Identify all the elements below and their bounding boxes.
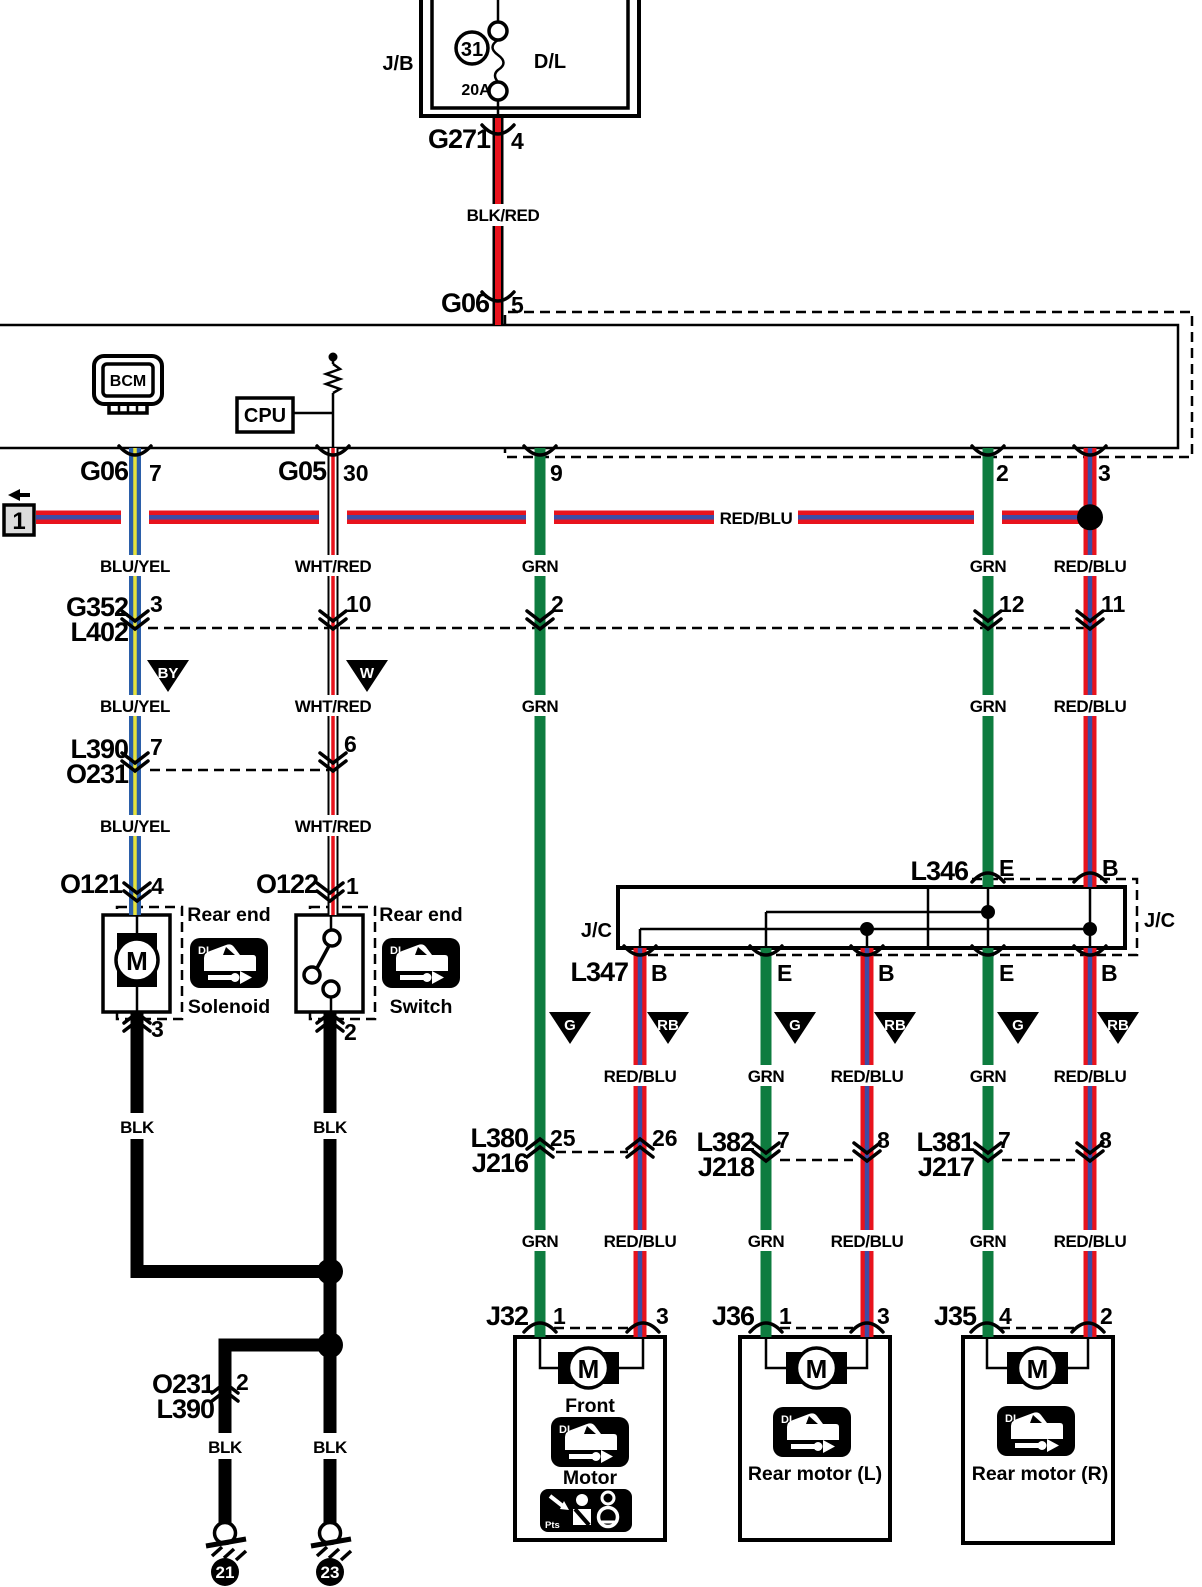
wire-grn-2 — [761, 948, 772, 1337]
arrow-left-icon — [8, 489, 30, 501]
pin-number: 8 — [1099, 1127, 1112, 1153]
wire-label: BLU/YEL — [100, 697, 170, 716]
connector-chevrons — [119, 125, 1106, 1401]
connector-g05: G05 — [278, 456, 327, 486]
wire-label: GRN — [970, 557, 1007, 576]
blk-junction-dot — [317, 1259, 343, 1285]
ground-number: 21 — [216, 1563, 235, 1582]
wire-label: GRN — [522, 557, 559, 576]
wire-label: BLU/YEL — [100, 817, 170, 836]
circuit-ref: 1 — [4, 489, 34, 535]
pin-number: 2 — [344, 1019, 357, 1045]
wire-label: BLK/RED — [467, 206, 540, 225]
passenger-lock-icon: Pts — [540, 1489, 632, 1532]
pin-number: 1 — [779, 1303, 792, 1329]
code-rb: RB — [657, 1017, 679, 1034]
circuit-label: D/L — [534, 51, 566, 73]
jc-junction-dot — [981, 905, 995, 919]
wire-label: RED/BLU — [604, 1232, 677, 1251]
jc-junction-dot — [1083, 922, 1097, 936]
solenoid-box: M — [103, 907, 182, 1019]
wire-label: WHT/RED — [295, 817, 372, 836]
connector-l390-bottom: L390 — [156, 1394, 214, 1424]
cpu-label: CPU — [244, 405, 286, 427]
pin-number: 4 — [151, 873, 164, 899]
pin-letter: B — [651, 960, 668, 986]
connector-g271: G271 — [428, 124, 491, 154]
pin-number: 1 — [346, 873, 359, 899]
pin-number: 26 — [652, 1125, 678, 1151]
pin-number: 10 — [346, 591, 372, 617]
fuse-rating: 20A — [461, 82, 491, 99]
connector-o231: O231 — [66, 759, 129, 789]
bus-redblu — [36, 504, 1103, 530]
pin-number: 3 — [656, 1303, 669, 1329]
wire-label: BLU/YEL — [100, 557, 170, 576]
rear-motor-r-caption: Rear motor (R) — [972, 1463, 1109, 1485]
pin-letter: B — [1101, 960, 1118, 986]
pin-letter: B — [1102, 855, 1119, 881]
pin-number: 25 — [550, 1125, 576, 1151]
junction-block-label: J/B — [382, 53, 413, 75]
wire-label: RED/BLU — [1054, 697, 1127, 716]
bus-junction-dot — [1077, 504, 1103, 530]
pin-number: 2 — [1100, 1303, 1113, 1329]
connector-o121: O121 — [60, 869, 123, 899]
pin-number: 7 — [150, 734, 163, 760]
wire-grn-1 — [535, 448, 546, 1337]
pin-number: 7 — [777, 1127, 790, 1153]
pin-number: 6 — [344, 731, 357, 757]
jc-label-left: J/C — [581, 920, 612, 942]
wire-label: GRN — [522, 1232, 559, 1251]
wiring-diagram: 31 20A J/B D/L BCM CPU — [0, 0, 1202, 1587]
caption: Switch — [390, 996, 453, 1018]
wire-label: BLK — [120, 1118, 155, 1137]
pin-letter: E — [777, 960, 792, 986]
wire-bluyel — [129, 448, 141, 915]
pin-number: 12 — [999, 591, 1025, 617]
wire-label: GRN — [970, 1067, 1007, 1086]
pin-number: 3 — [877, 1303, 890, 1329]
wire-grn-3-lower — [983, 948, 994, 1337]
wire-label: GRN — [970, 697, 1007, 716]
connector-j32: J32 — [486, 1301, 528, 1331]
motor-letter: M — [806, 1354, 828, 1384]
connector-j36: J36 — [712, 1301, 755, 1331]
jc-label-right: J/C — [1144, 910, 1175, 932]
wire-label: RED/BLU — [831, 1232, 904, 1251]
dl-icon-label: DL — [390, 945, 405, 957]
pin-letter: E — [999, 960, 1014, 986]
motor-letter: M — [1027, 1354, 1049, 1384]
pin-letter: B — [878, 960, 895, 986]
connector-l347: L347 — [570, 957, 628, 987]
wire-label: GRN — [970, 1232, 1007, 1251]
bus-label: RED/BLU — [720, 509, 793, 528]
motor-letter: M — [578, 1354, 600, 1384]
wire-whtred — [328, 448, 339, 915]
connector-j35: J35 — [934, 1301, 977, 1331]
pin-number: 7 — [998, 1127, 1011, 1153]
fuse-terminal-top — [489, 22, 507, 40]
connector-labels: G271 4 G06 5 G06 7 G05 30 9 2 3 G352 L40… — [60, 124, 1175, 1424]
bcm-module-icon: BCM — [94, 356, 162, 413]
icon-small-text: Pts — [545, 1520, 560, 1531]
front-caption: Front — [565, 1395, 615, 1417]
caption: Rear end — [379, 904, 462, 926]
pin-number: 11 — [1101, 591, 1126, 617]
fuse-terminal-bottom — [489, 82, 507, 100]
dl-icon-label: DL — [1005, 1413, 1020, 1425]
jc-junction-dot — [860, 922, 874, 936]
pin-number: 3 — [150, 591, 163, 617]
pin-number: 30 — [343, 460, 369, 486]
connector-l346: L346 — [910, 856, 969, 886]
bcm-box — [0, 325, 1178, 448]
pin-number: 1 — [553, 1303, 566, 1329]
pin-number: 4 — [999, 1303, 1012, 1329]
connector-j216: J216 — [472, 1148, 529, 1178]
fuse-number: 31 — [461, 39, 483, 61]
wire-label: RED/BLU — [1054, 557, 1127, 576]
motor-letter: M — [126, 946, 148, 976]
pin-number: 2 — [236, 1369, 249, 1395]
dl-icon-label: DL — [559, 1424, 574, 1436]
pin-number: 2 — [551, 591, 564, 617]
code-g: G — [564, 1017, 576, 1034]
pin-letter: E — [999, 855, 1014, 881]
code-by: BY — [158, 665, 179, 682]
wire-label: RED/BLU — [831, 1067, 904, 1086]
wire-label: WHT/RED — [295, 697, 372, 716]
code-w: W — [360, 665, 375, 682]
caption: Solenoid — [188, 996, 270, 1018]
wire-label: BLK — [208, 1438, 243, 1457]
ref-number: 1 — [12, 508, 25, 535]
caption: Rear end — [187, 904, 270, 926]
wire-redblu-2 — [861, 948, 874, 1337]
pin-number: 3 — [151, 1016, 164, 1042]
motor-caption: Motor — [563, 1467, 618, 1489]
wire-label: WHT/RED — [295, 557, 372, 576]
ground-number: 23 — [321, 1563, 340, 1582]
junction-block-jc — [618, 879, 1137, 955]
wire-label: GRN — [748, 1232, 785, 1251]
rear-motor-l-caption: Rear motor (L) — [748, 1463, 882, 1485]
connector-l402: L402 — [70, 617, 128, 647]
pin-number: 4 — [511, 128, 524, 154]
bcm-label: BCM — [110, 373, 146, 390]
wire-label: GRN — [748, 1067, 785, 1086]
ground-right: 23 — [311, 1523, 351, 1587]
wire-grn-3-upper — [983, 448, 994, 887]
connector-j217: J217 — [918, 1152, 974, 1182]
blk-junction-dot — [317, 1332, 343, 1358]
dl-icon-label: DL — [781, 1414, 796, 1426]
pin-number: 8 — [877, 1127, 890, 1153]
code-g: G — [789, 1017, 801, 1034]
code-g: G — [1012, 1017, 1024, 1034]
connector-g06: G06 — [80, 456, 129, 486]
wire-label: RED/BLU — [1054, 1067, 1127, 1086]
connector-o122: O122 — [256, 869, 318, 899]
connector-j218: J218 — [698, 1152, 755, 1182]
pin-number: 9 — [550, 460, 563, 486]
fuse-box: 31 20A J/B D/L — [382, 0, 639, 118]
wire-label: BLK — [313, 1118, 348, 1137]
pin-number: 5 — [511, 292, 524, 318]
wire-label: RED/BLU — [1054, 1232, 1127, 1251]
wire-label: RED/BLU — [604, 1067, 677, 1086]
dl-icon-label: DL — [198, 945, 213, 957]
pin-number: 2 — [996, 460, 1009, 486]
door-switch-box — [296, 907, 375, 1019]
wire-label: BLK — [313, 1438, 348, 1457]
code-rb: RB — [884, 1017, 906, 1034]
connector-g06-top: G06 — [441, 288, 490, 318]
pin-number: 3 — [1098, 460, 1111, 486]
code-rb: RB — [1107, 1017, 1129, 1034]
wire-label: GRN — [522, 697, 559, 716]
diagram-canvas: 31 20A J/B D/L BCM CPU — [0, 0, 1202, 1587]
ground-left: 21 — [206, 1523, 246, 1587]
pin-number: 7 — [149, 460, 162, 486]
